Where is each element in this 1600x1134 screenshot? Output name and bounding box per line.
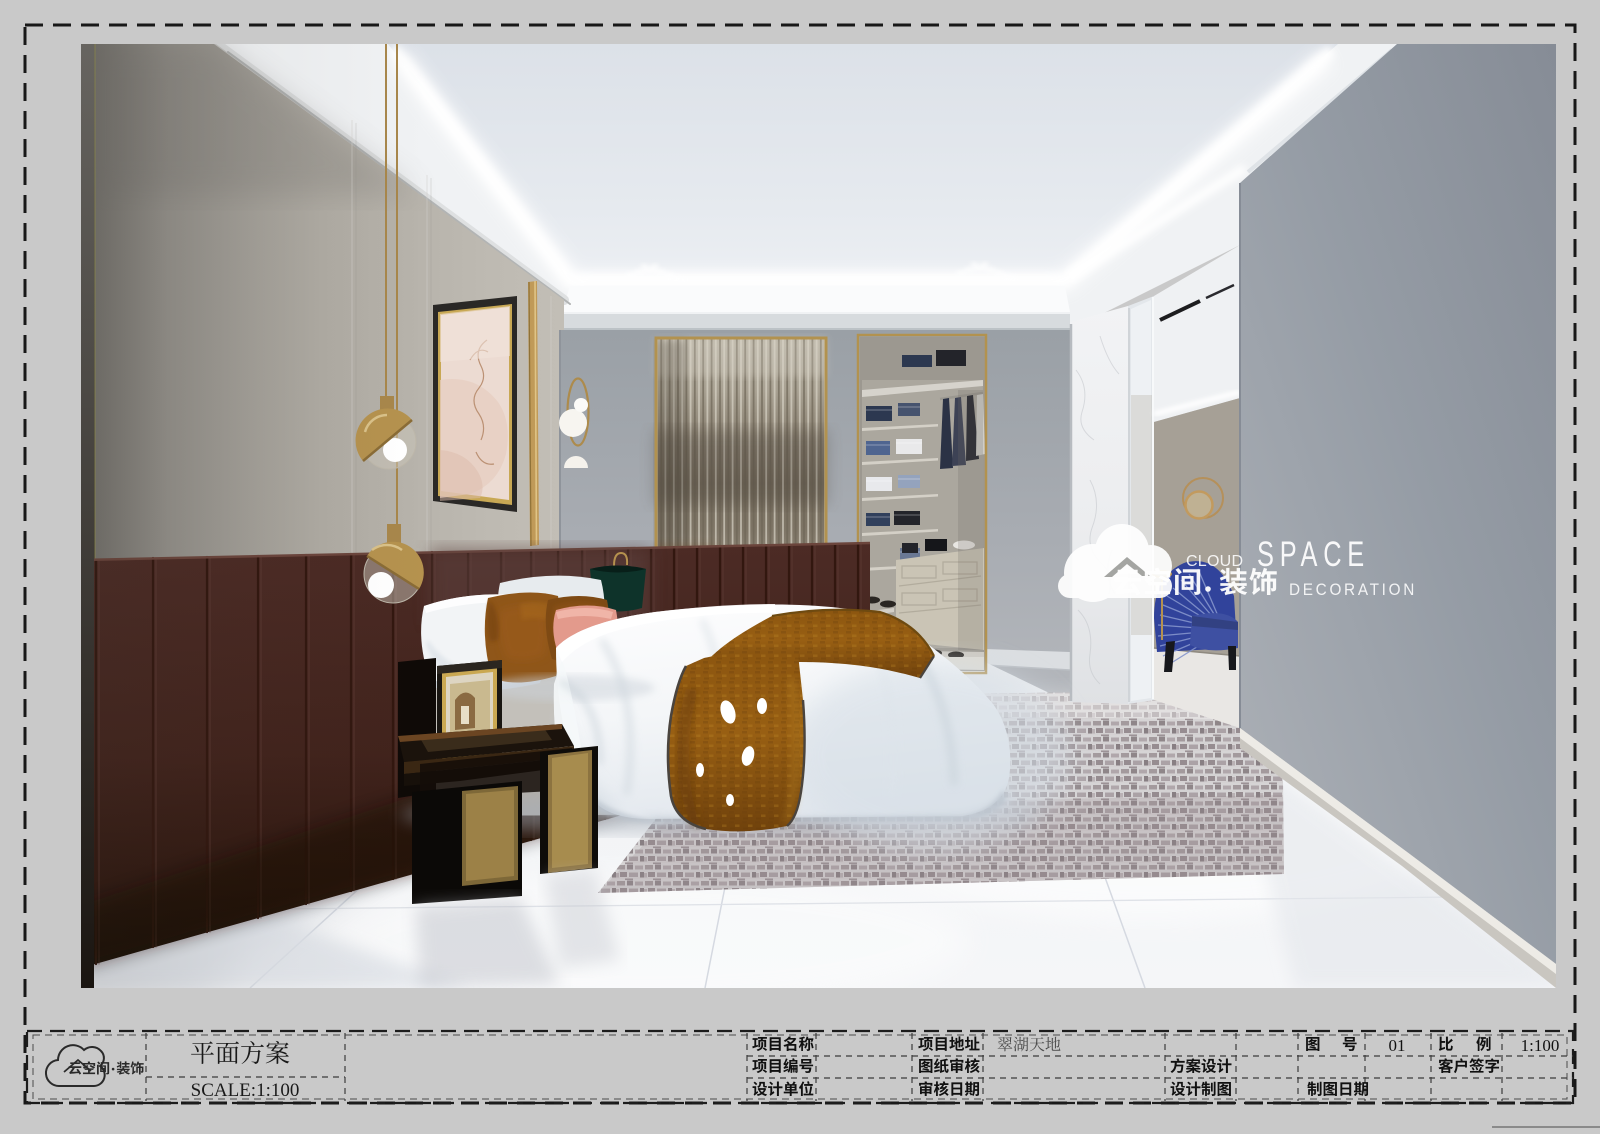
svg-text:CLOUD: CLOUD (1186, 553, 1246, 570)
svg-text:01: 01 (1389, 1036, 1406, 1055)
svg-text:SPACE: SPACE (1257, 535, 1370, 574)
svg-text:SCALE:1:100: SCALE:1:100 (191, 1080, 300, 1101)
svg-text:1:100: 1:100 (1521, 1036, 1560, 1055)
svg-text:DECORATION: DECORATION (1289, 580, 1417, 599)
